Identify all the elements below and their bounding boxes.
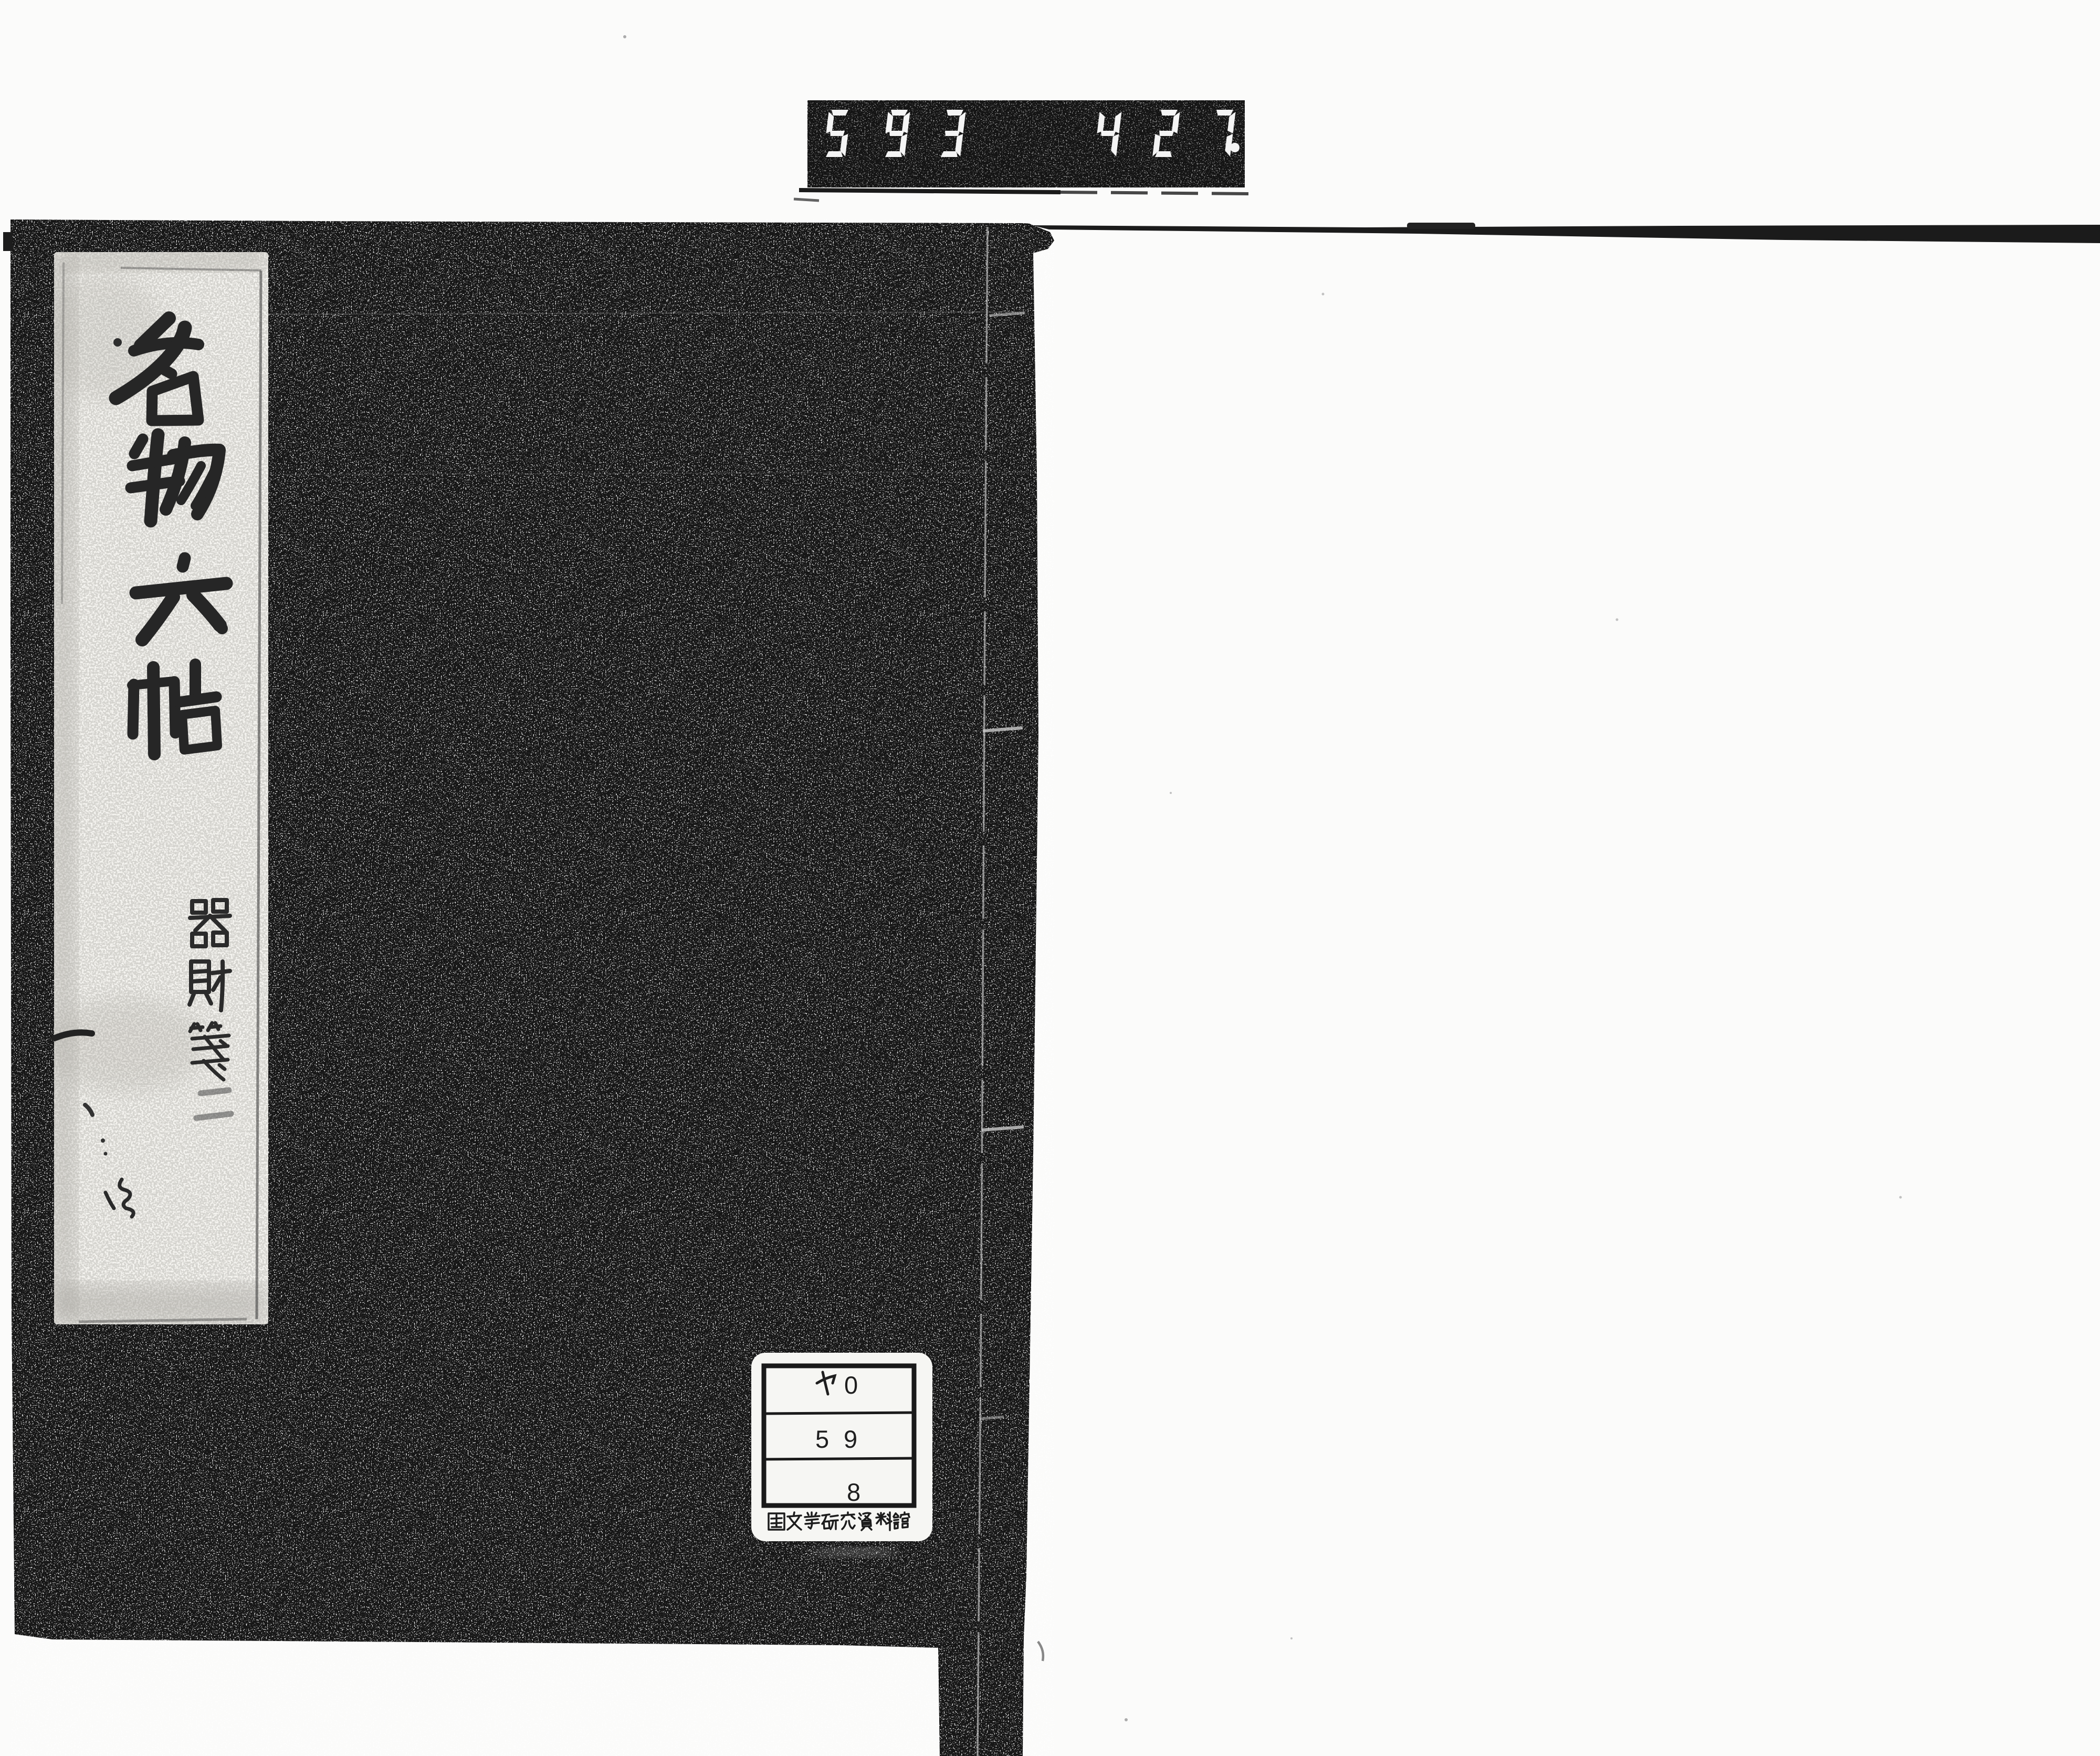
svg-text:8: 8: [847, 1478, 860, 1506]
svg-text:0: 0: [844, 1371, 858, 1399]
svg-text:5: 5: [815, 1425, 829, 1453]
svg-text:9: 9: [844, 1425, 857, 1453]
